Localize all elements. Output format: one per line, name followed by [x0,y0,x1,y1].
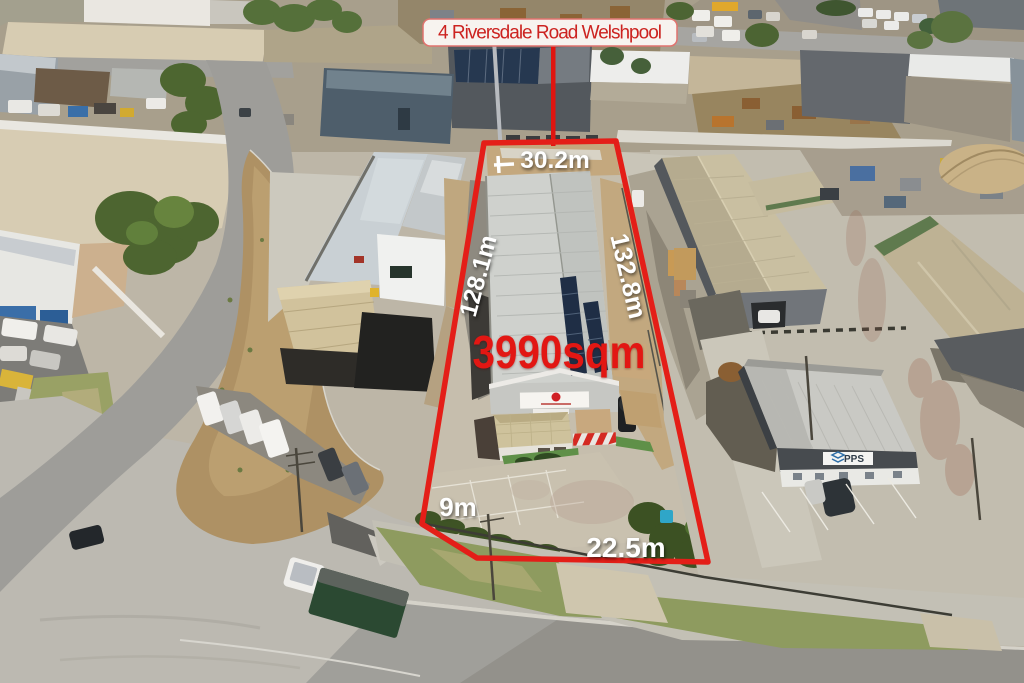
svg-text:3990sqm: 3990sqm [473,326,646,378]
svg-text:9m: 9m [439,492,477,522]
svg-text:PPS: PPS [844,454,864,465]
svg-text:4 Riversdale Road Welshpool: 4 Riversdale Road Welshpool [438,23,662,44]
svg-text:30.2m: 30.2m [520,147,589,174]
svg-text:22.5m: 22.5m [586,532,665,563]
